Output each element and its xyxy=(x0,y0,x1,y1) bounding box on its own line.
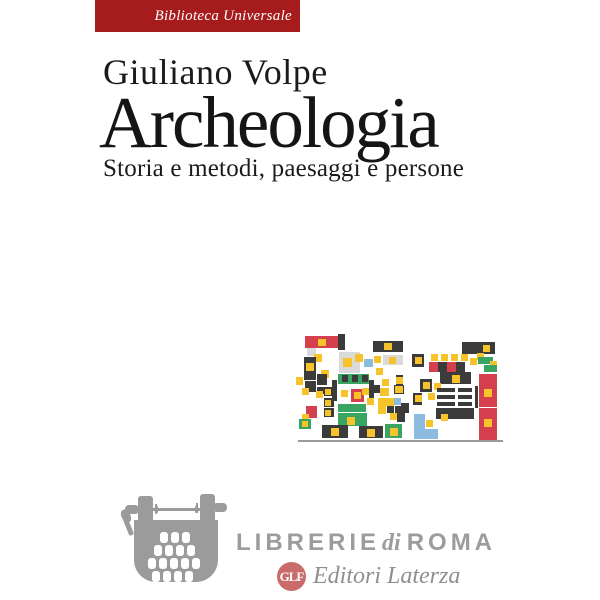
artwork-block xyxy=(325,400,331,406)
artwork-block xyxy=(397,409,405,422)
artwork-block xyxy=(362,375,368,382)
artwork-block xyxy=(378,398,386,406)
artwork-block xyxy=(458,402,472,406)
artwork-block xyxy=(441,354,448,361)
artwork-block xyxy=(390,413,397,420)
artwork-block xyxy=(352,375,358,382)
artwork-block xyxy=(376,368,383,375)
artwork-block xyxy=(367,398,374,405)
artwork-block xyxy=(461,354,468,361)
glf-monogram-icon: GLF xyxy=(277,562,306,591)
artwork-block xyxy=(452,375,460,383)
artwork-block xyxy=(302,421,308,427)
artwork-block xyxy=(306,363,314,371)
artwork-block xyxy=(390,428,398,436)
artwork-block xyxy=(382,379,389,386)
artwork-block xyxy=(438,362,447,372)
typewriter-icon xyxy=(117,492,235,590)
artwork-block xyxy=(374,356,381,363)
artwork-block xyxy=(426,420,433,427)
artwork-block xyxy=(298,440,503,442)
artwork-block xyxy=(458,388,472,392)
artwork-block xyxy=(458,395,472,399)
artwork-block xyxy=(437,395,455,399)
bookstore-wordmark: LIBRERIEdiROMA xyxy=(236,531,496,555)
publisher-name: Editori Laterza xyxy=(313,563,460,590)
artwork-block xyxy=(431,354,438,361)
artwork-block xyxy=(428,393,435,400)
artwork-block xyxy=(367,429,375,437)
series-banner: Biblioteca Universale xyxy=(95,0,300,32)
artwork-block xyxy=(343,358,352,367)
artwork-block xyxy=(338,404,366,412)
artwork-block xyxy=(484,419,492,427)
artwork-block xyxy=(347,417,355,425)
artwork-block xyxy=(325,389,331,395)
publisher-lockup: GLF Editori Laterza xyxy=(277,562,460,591)
artwork-block xyxy=(415,357,422,364)
artwork-block xyxy=(414,429,438,439)
artwork-block xyxy=(483,345,490,352)
book-cover: Biblioteca Universale Giuliano Volpe Arc… xyxy=(0,0,600,600)
artwork-block xyxy=(437,388,455,392)
book-subtitle: Storia e metodi, paesaggi e persone xyxy=(103,156,464,181)
artwork-block xyxy=(447,362,456,372)
series-banner-label: Biblioteca Universale xyxy=(154,8,300,25)
artwork-block xyxy=(331,428,339,436)
artwork-block xyxy=(380,388,389,396)
artwork-block xyxy=(484,389,492,397)
artwork-block xyxy=(316,391,323,398)
artwork-block xyxy=(296,377,303,385)
artwork-block xyxy=(415,395,422,402)
artwork-block xyxy=(441,414,448,421)
artwork-block xyxy=(364,359,373,367)
artwork-block xyxy=(354,392,361,399)
artwork-block xyxy=(378,406,386,414)
artwork-block xyxy=(484,365,497,372)
artwork-block xyxy=(451,354,458,361)
book-title: Archeologia xyxy=(99,86,438,159)
artwork-block xyxy=(429,362,438,372)
bookstore-word-di: di xyxy=(382,530,401,556)
artwork-block xyxy=(342,375,348,382)
artwork-block xyxy=(302,388,309,395)
artwork-block xyxy=(317,374,327,385)
artwork-block xyxy=(437,402,455,406)
artwork-block xyxy=(318,339,326,346)
excavation-artwork xyxy=(296,330,508,443)
artwork-block xyxy=(341,390,348,397)
artwork-block xyxy=(395,386,403,393)
artwork-block xyxy=(396,377,403,384)
artwork-block xyxy=(386,398,394,406)
artwork-block xyxy=(394,398,401,405)
artwork-block xyxy=(384,343,392,350)
artwork-block xyxy=(470,358,477,365)
artwork-block xyxy=(475,386,478,408)
artwork-block xyxy=(423,382,430,389)
artwork-block xyxy=(389,357,396,364)
bookstore-word-librerie: LIBRERIE xyxy=(236,529,380,556)
artwork-block xyxy=(325,410,331,416)
artwork-block xyxy=(338,334,345,350)
artwork-block xyxy=(355,354,363,362)
artwork-block xyxy=(456,362,465,372)
artwork-block xyxy=(362,388,369,395)
artwork-block xyxy=(387,406,394,413)
bookstore-word-roma: ROMA xyxy=(407,529,496,556)
